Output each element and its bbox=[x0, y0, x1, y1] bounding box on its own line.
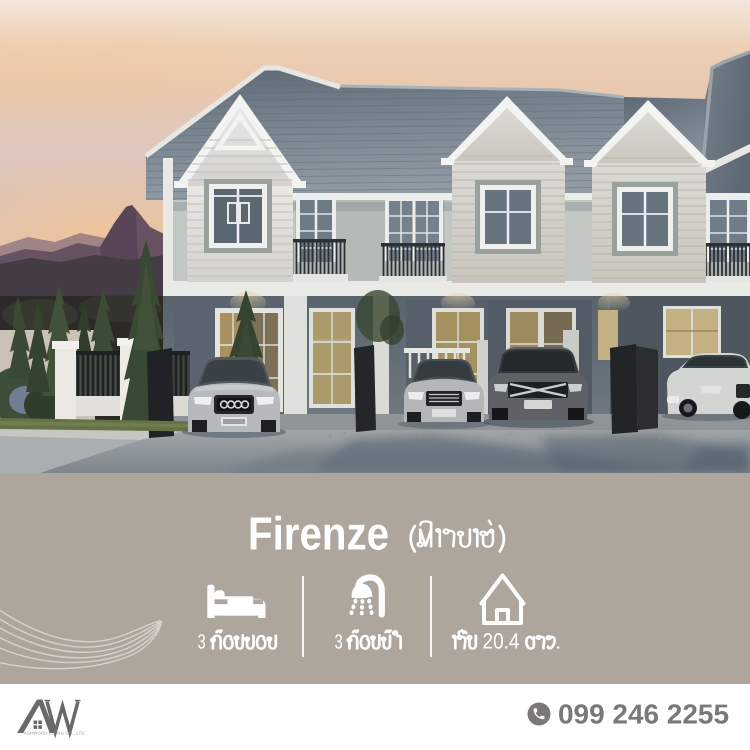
svg-text:099 246 2255: 099 246 2255 bbox=[558, 699, 729, 730]
svg-text:3: 3 bbox=[335, 631, 343, 654]
svg-text:20.4: 20.4 bbox=[483, 629, 520, 654]
svg-text:3: 3 bbox=[198, 631, 206, 654]
svg-text:Firenze: Firenze bbox=[248, 508, 389, 560]
svg-text:ASHWOOD LIVING CO., LTD.: ASHWOOD LIVING CO., LTD. bbox=[24, 730, 86, 735]
